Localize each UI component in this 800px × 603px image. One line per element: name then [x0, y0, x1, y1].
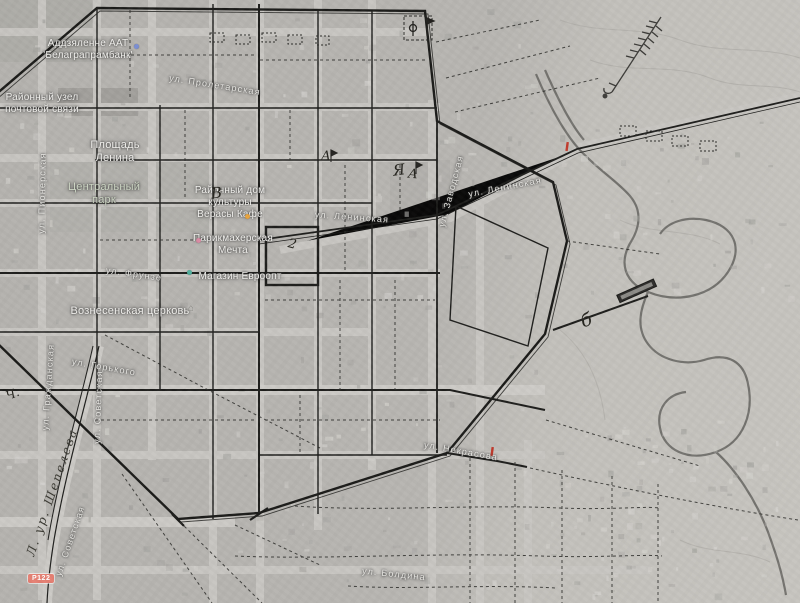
poi-label-central-park: Центральный парк [68, 181, 140, 207]
poi-label-house-of-culture: Районный дом культуры Верасы Кафе [195, 185, 265, 220]
plan-letter-a2: А [407, 168, 418, 182]
plan-letter-ya: Я [392, 162, 406, 179]
shop-pin-icon[interactable] [187, 270, 192, 275]
street-label-pionerskaya: ул. Пионерская [36, 152, 47, 234]
poi-label-bank: Аддзяленне ААТ 'Белаграпрамбанк' [43, 38, 132, 62]
church-icon: ⌂ [188, 303, 194, 314]
poi-label-church: Вознесенская церковь [71, 305, 190, 318]
poi-label-hairdresser: Парикмахерская Мечта [193, 233, 273, 257]
plan-letter-a1: А [321, 150, 331, 163]
plan-letter-v: В [210, 185, 223, 201]
bank-pin-icon[interactable] [134, 44, 139, 49]
satellite-map-canvas[interactable]: Аддзяленне ААТ 'Белаграпрамбанк' Районны… [0, 0, 800, 603]
plot-squares [210, 16, 716, 151]
poi-label-post-office: Районный узел почтовой связи [5, 92, 79, 116]
cafe-pin-icon[interactable] [245, 214, 250, 219]
hairdresser-pin-icon[interactable] [196, 238, 201, 243]
road-shield-p122[interactable]: Р122 [28, 574, 54, 583]
poi-label-lenin-square: Площадь Ленина [90, 139, 139, 165]
plan-streets [0, 4, 800, 603]
rampart-outline [0, 8, 570, 526]
old-plan-overlay [0, 0, 800, 603]
poi-label-shop-evroopt: Магазин Евроопт [198, 271, 281, 283]
plan-dashed-lines [95, 10, 798, 603]
north-arrow-feather [603, 17, 662, 98]
